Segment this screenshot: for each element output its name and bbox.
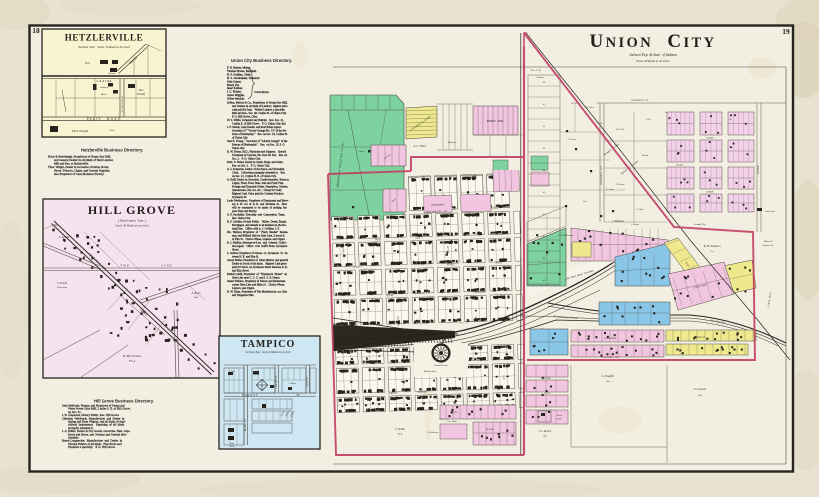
svg-text:J. Smith: J. Smith [395,427,405,431]
svg-text:J. Pty: J. Pty [646,118,651,121]
svg-text:WALNUT: WALNUT [242,393,258,397]
svg-text:CENTER ST: CENTER ST [275,375,278,389]
svg-text:G. W. Pty: G. W. Pty [616,128,624,131]
svg-text:WALNUT: WALNUT [415,291,425,294]
svg-text:DEERFIELD AVE.: DEERFIELD AVE. [600,165,603,185]
svg-text:Scale 30 Rods to one Inch: Scale 30 Rods to one Inch [115,224,149,228]
svg-text:Jackson Twp. Scale 10 Rods t: Jackson Twp. Scale 10 Rods to the Inch [78,45,130,49]
svg-text:John: John [230,443,234,445]
svg-text:UNION: UNION [706,192,713,194]
svg-text:Round House: Round House [434,364,448,367]
svg-text:Oliver Mackin,: Oliver Mackin, [227,97,245,101]
svg-text:TAMPICO: TAMPICO [241,339,296,350]
svg-text:ASH: ASH [502,375,505,380]
svg-text:LINE: LINE [161,264,172,268]
svg-text:VINE: VINE [452,412,458,414]
svg-text:Lang: Lang [359,150,366,153]
svg-text:MAIN ST: MAIN ST [244,419,247,431]
svg-text:P. Kuntz: P. Kuntz [535,76,543,79]
svg-text:Councilmen.: Councilmen. [254,90,270,94]
svg-text:Hetzler: Hetzler [107,72,115,75]
svg-text:Union City Business Directory.: Union City Business Directory. [231,58,292,63]
svg-text:PEARL: PEARL [677,164,685,167]
svg-text:PLUM: PLUM [386,294,394,297]
svg-text:( Washington Twp. ): ( Washington Twp. ) [118,219,147,223]
svg-text:Heir: Heir [193,296,198,299]
svg-text:PROSPECT ST.: PROSPECT ST. [632,99,649,102]
svg-text:Wm: Wm [54,225,58,227]
svg-text:Hetzlerville Business Director: Hetzlerville Business Directory. [81,148,143,153]
svg-text:100 a: 100 a [109,129,115,132]
svg-text:E. Stone: E. Stone [605,188,614,191]
svg-text:J. Koons: J. Koons [631,224,639,226]
svg-text:Limited City: Limited City [693,223,706,226]
svg-text:EAST ST: EAST ST [306,377,309,387]
svg-text:FT RECOVERY: FT RECOVERY [121,95,124,112]
svg-text:G. R. & I. R.R.: G. R. & I. R.R. [96,80,112,83]
svg-text:also Proprietor of Cane Molass: also Proprietor of Cane Molasses Factory… [54,172,105,176]
svg-text:J. Elwood: J. Elwood [616,184,626,186]
svg-text:PLUM: PLUM [448,246,450,252]
svg-text:J. Williams: J. Williams [612,220,624,223]
svg-text:Thornburg: Thornburg [57,286,68,289]
svg-text:S. R. Williamson: S. R. Williamson [558,235,574,237]
svg-text:J. Ross: J. Ross [229,371,235,373]
svg-text:UNION CITY: UNION CITY [589,31,716,52]
svg-text:store: store [85,62,91,65]
svg-text:CENTENNIAL: CENTENNIAL [431,203,446,206]
svg-text:OAK: OAK [415,237,420,240]
svg-text:L. Arnold: L. Arnold [58,236,70,239]
svg-text:Scale 30 Rods to an Inch.: Scale 30 Rods to an Inch. [636,59,670,63]
svg-text:SMITH: SMITH [495,262,503,264]
svg-text:PEARL: PEARL [447,263,455,266]
svg-text:S. Carter: S. Carter [568,138,577,141]
svg-text:COREY: COREY [706,138,714,140]
svg-text:P. Hill: P. Hill [570,103,577,105]
svg-text:HOWARD: HOWARD [397,316,400,326]
svg-text:WATER: WATER [544,377,552,380]
svg-text:Furniture a specialty. P. O.: Furniture a specialty. P. O. Hill Grove. [68,445,116,449]
svg-text:CHERRY: CHERRY [418,391,427,393]
svg-text:42: 42 [543,126,545,128]
svg-text:German Twp. Scale 20 Rods to: German Twp. Scale 20 Rods to the Inch [245,351,291,354]
svg-text:KEMP'S ADD.: KEMP'S ADD. [487,120,504,123]
svg-text:Thos Wright: Thos Wright [72,129,90,133]
svg-text:Corporation Line: Corporation Line [601,356,621,359]
svg-text:Machine Shop: Machine Shop [423,371,437,373]
svg-text:Puthoff: Puthoff [136,93,146,96]
svg-text:Whitacre: Whitacre [448,141,457,144]
svg-text:Miller: Miller [100,93,107,96]
svg-text:37 a: 37 a [398,433,403,436]
svg-text:Windsor Co: Windsor Co [763,245,775,247]
svg-text:TWP: TWP [120,264,130,268]
svg-text:A. Root: A. Root [636,208,644,211]
svg-text:and Tangerine Pike.: and Tangerine Pike. [232,294,254,297]
svg-text:G. Shaeffer: G. Shaeffer [602,375,616,378]
svg-text:Thos: Thos [138,89,143,92]
svg-text:H. McCormick: H. McCormick [122,354,141,358]
svg-text:49: 49 [543,280,545,282]
svg-text:19: 19 [782,27,790,36]
svg-text:HETZLERVILLE: HETZLERVILLE [65,33,143,43]
svg-text:Smith: Smith [230,445,235,448]
svg-text:MAPLE: MAPLE [486,428,494,431]
svg-text:37¼ a: 37¼ a [129,360,136,363]
svg-text:W. H. Southern: W. H. Southern [704,245,722,248]
svg-text:Jackson Twp. & State of India: Jackson Twp. & State of Indiana [629,53,677,57]
svg-text:HILL GROVE: HILL GROVE [88,203,176,217]
svg-text:E. Byers: E. Byers [191,292,201,295]
svg-text:HIGH: HIGH [375,238,381,241]
svg-text:COLUMBIA: COLUMBIA [342,246,345,258]
svg-text:ANDERSON: ANDERSON [604,337,616,340]
svg-text:F. Arnold: F. Arnold [56,282,67,285]
svg-text:MAIN: MAIN [354,265,361,268]
svg-text:HIGH: HIGH [544,393,550,395]
svg-text:PARIS ROAD: PARIS ROAD [87,117,122,121]
svg-text:41: 41 [543,104,545,106]
svg-text:F. Conover: F. Conover [693,388,707,391]
svg-text:A. C. Fisher: A. C. Fisher [413,145,428,148]
svg-text:J. L. Bowen: J. L. Bowen [539,430,552,433]
svg-text:Saleham: Saleham [100,86,109,89]
svg-text:Wm. A. Ply: Wm. A. Ply [531,69,542,72]
svg-text:Butler &: Butler & [764,240,772,243]
svg-text:SOUTH: SOUTH [388,392,397,395]
svg-text:ST: ST [296,393,300,397]
svg-text:CHESTNUT: CHESTNUT [473,292,486,294]
svg-text:18: 18 [32,26,40,35]
svg-text:W. Schlosser: W. Schlosser [427,432,438,434]
svg-text:Geo. Waltz: Geo. Waltz [447,420,457,423]
svg-text:TANNER: TANNER [757,165,760,175]
svg-text:Slate Pond: Slate Pond [765,210,775,213]
svg-text:SMITH ST: SMITH ST [695,337,706,339]
svg-text:A. Myer: A. Myer [287,382,296,385]
svg-text:tion Agent. Office over Ru: tion Agent. Office over Ruff's Store, Sy… [232,245,288,248]
svg-text:Phoebe: Phoebe [641,155,649,157]
